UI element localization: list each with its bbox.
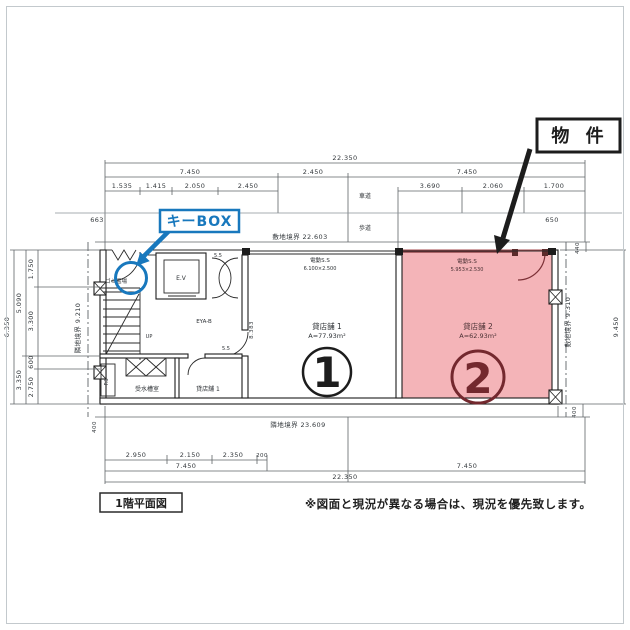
floor-plan-page: 22.350 7.450 2.450 7.450 1.535 1.415 2.0… [0,0,630,630]
scan-border [6,6,624,624]
